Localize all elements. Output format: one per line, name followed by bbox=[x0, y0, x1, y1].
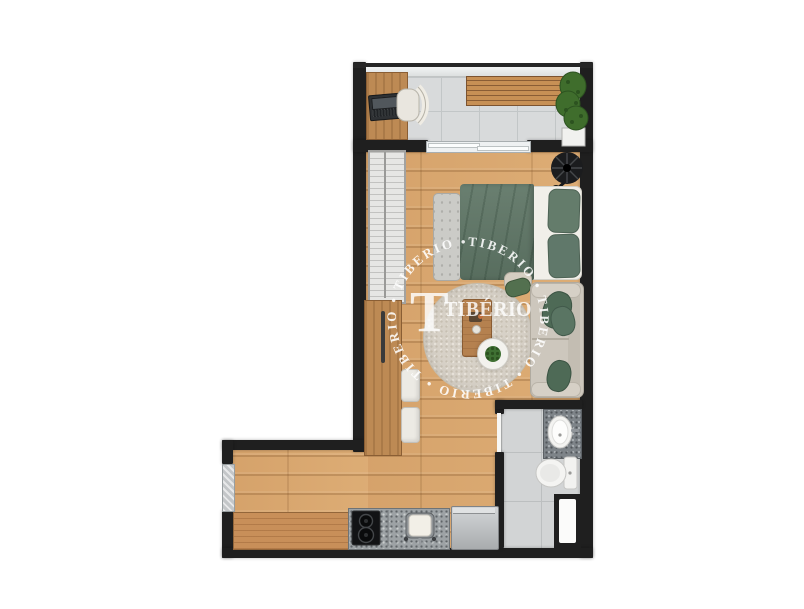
kitchen-window bbox=[222, 464, 235, 512]
wall-kitchen-left-a bbox=[222, 440, 233, 464]
stool bbox=[401, 407, 420, 443]
window-pane-right bbox=[477, 146, 529, 151]
sofa-seat-line bbox=[532, 338, 569, 340]
kitchen-wood-counter bbox=[233, 512, 349, 550]
floor-plan-canvas: TIBERIO • TIBERIO • TIBERIO • TIBERIO • … bbox=[0, 0, 804, 609]
table-plant bbox=[485, 346, 501, 362]
bed-duvet bbox=[460, 184, 534, 280]
foot-bench bbox=[433, 193, 461, 281]
double-bed bbox=[460, 184, 582, 280]
window-pane-left bbox=[428, 143, 480, 148]
stool bbox=[401, 369, 420, 402]
sofa bbox=[530, 282, 582, 396]
kitchen-fixtures bbox=[348, 508, 448, 548]
bathroom-fixtures bbox=[495, 400, 582, 550]
cabinet-handle bbox=[381, 311, 385, 363]
potted-plant bbox=[554, 70, 590, 150]
tall-cabinet bbox=[364, 300, 402, 456]
bed-pillow bbox=[547, 188, 581, 233]
sliding-window bbox=[426, 141, 531, 153]
cup bbox=[472, 325, 481, 334]
appliance bbox=[451, 506, 499, 550]
bed-pillow bbox=[547, 233, 581, 278]
office-chair bbox=[393, 80, 433, 130]
wall-kitchen-top bbox=[222, 440, 366, 450]
slatted-bench bbox=[466, 76, 568, 106]
decor-dot bbox=[478, 314, 483, 319]
wardrobe-rail bbox=[384, 152, 386, 298]
side-table bbox=[477, 338, 509, 370]
wardrobe bbox=[368, 150, 406, 304]
shower-window bbox=[559, 499, 576, 543]
appliance-lid bbox=[453, 508, 495, 514]
